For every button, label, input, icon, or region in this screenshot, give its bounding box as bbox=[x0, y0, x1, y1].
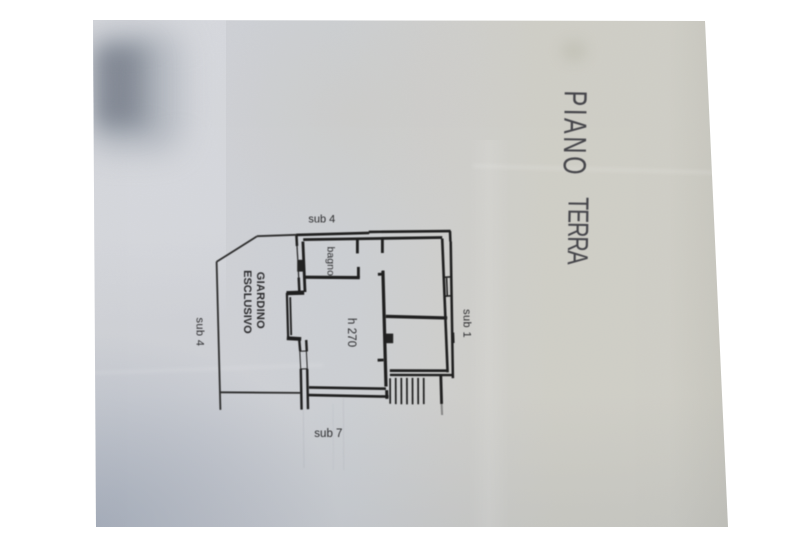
svg-text:GIARDINO ESCLUSIVO: GIARDINO ESCLUSIVO bbox=[241, 270, 266, 334]
svg-text:bagno: bagno bbox=[325, 246, 337, 276]
svg-text:sub 4: sub 4 bbox=[308, 214, 335, 226]
svg-text:PIANO: PIANO bbox=[557, 90, 594, 174]
svg-text:sub 7: sub 7 bbox=[314, 428, 342, 440]
svg-text:sub 1: sub 1 bbox=[461, 309, 473, 338]
svg-text:h 270: h 270 bbox=[345, 318, 357, 347]
svg-text:sub 4: sub 4 bbox=[193, 317, 205, 346]
svg-text:TERRA: TERRA bbox=[561, 197, 594, 265]
